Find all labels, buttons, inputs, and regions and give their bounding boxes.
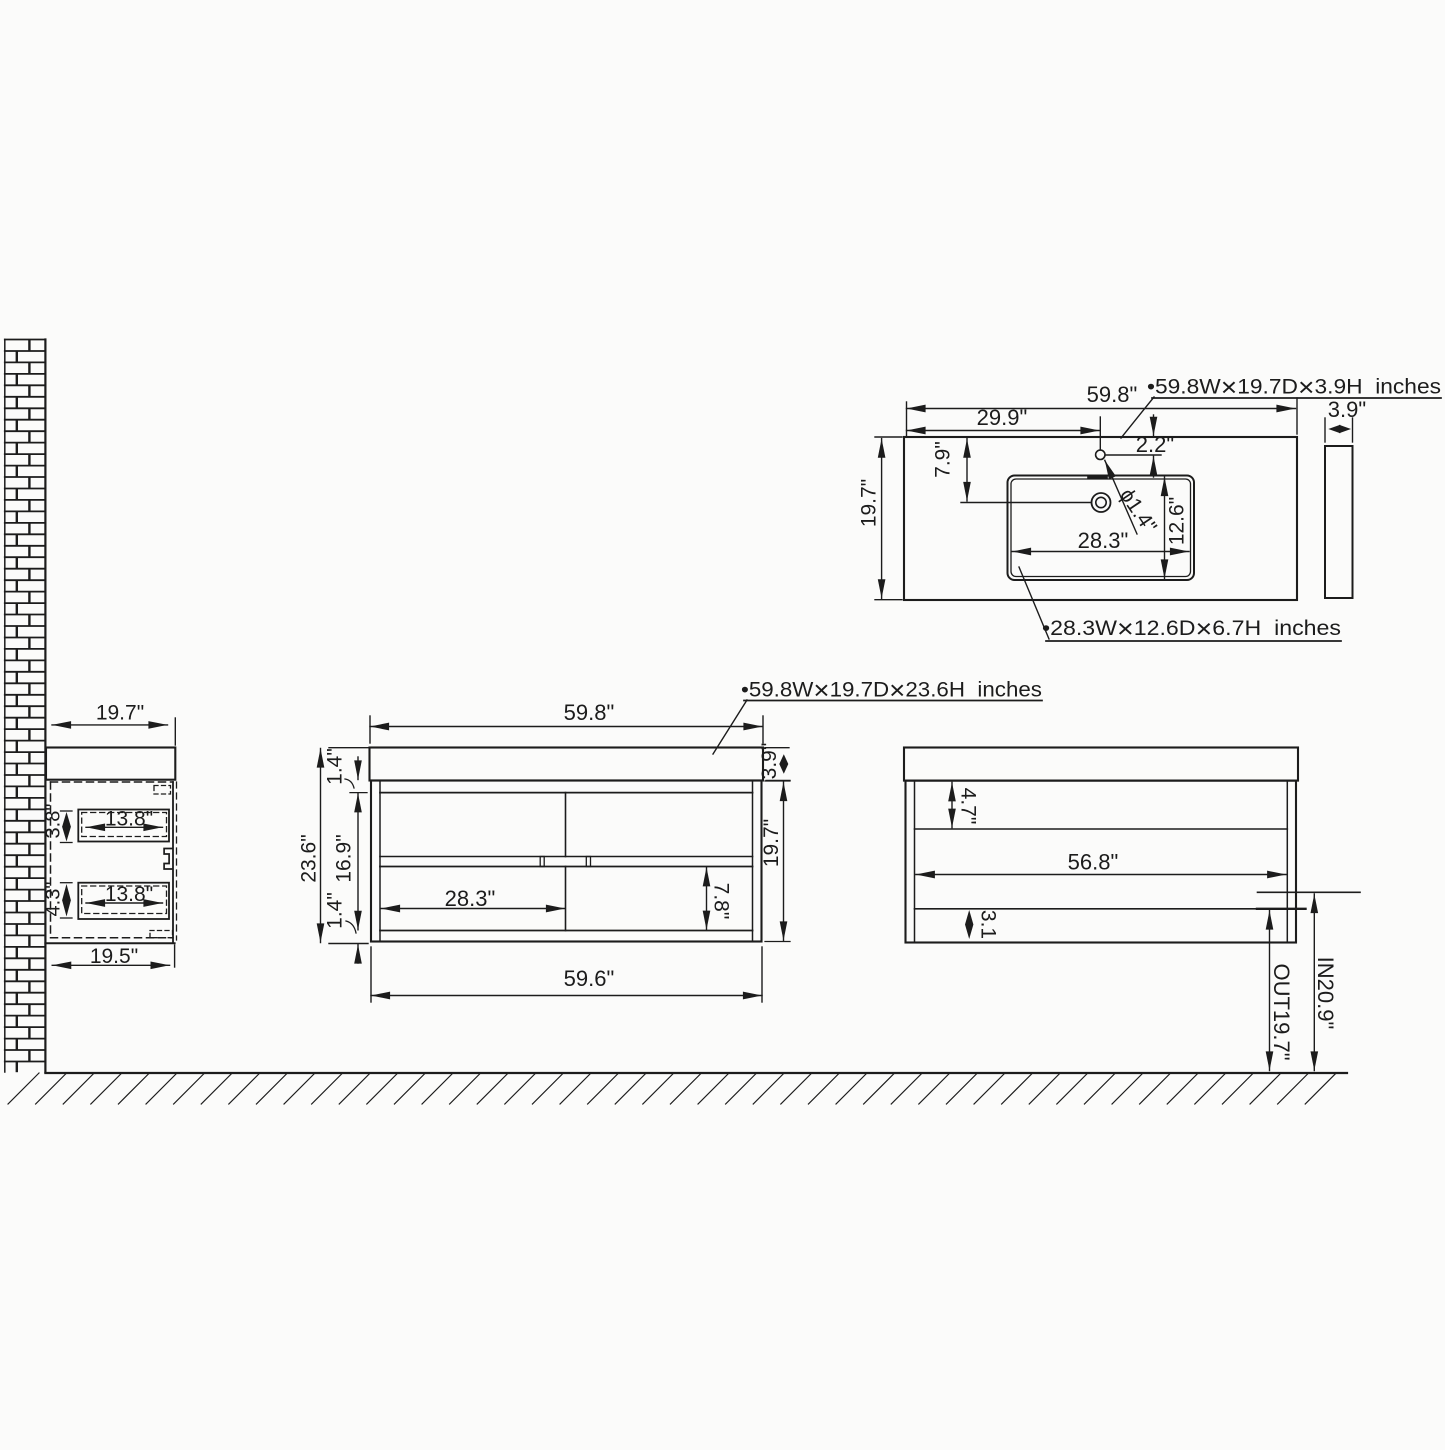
svg-text:59.6": 59.6" xyxy=(564,966,615,991)
svg-text:1.4": 1.4" xyxy=(324,748,347,785)
svg-text:23.6": 23.6" xyxy=(298,834,321,882)
svg-text:4.7": 4.7" xyxy=(957,788,980,825)
svg-text:1.4": 1.4" xyxy=(324,892,347,929)
svg-text:IN20.9": IN20.9" xyxy=(1313,957,1338,1030)
svg-text:59.8": 59.8" xyxy=(1087,382,1138,407)
svg-text:19.7": 19.7" xyxy=(858,479,881,527)
svg-text:•28.3W×12.6D×6.7H inches: •28.3W×12.6D×6.7H inches xyxy=(1042,614,1341,644)
svg-text:16.9": 16.9" xyxy=(333,834,356,882)
svg-text:3.1: 3.1 xyxy=(977,910,1000,939)
svg-text:2.2": 2.2" xyxy=(1136,432,1174,457)
svg-text:12.6": 12.6" xyxy=(1166,497,1189,545)
svg-text:19.7": 19.7" xyxy=(96,702,144,725)
svg-text:29.9": 29.9" xyxy=(977,405,1028,430)
svg-text:3.8": 3.8" xyxy=(43,804,65,839)
svg-text:4.3": 4.3" xyxy=(43,882,65,917)
svg-text:28.3": 28.3" xyxy=(445,886,496,911)
svg-text:56.8": 56.8" xyxy=(1068,850,1119,875)
svg-text:59.8": 59.8" xyxy=(564,700,615,725)
svg-text:7.9": 7.9" xyxy=(932,441,955,478)
svg-text:19.7": 19.7" xyxy=(760,819,783,867)
svg-text:3.9": 3.9" xyxy=(1328,397,1366,422)
svg-text:19.5": 19.5" xyxy=(90,945,138,968)
svg-text:OUT19.7": OUT19.7" xyxy=(1269,963,1294,1060)
svg-text:7.8": 7.8" xyxy=(710,883,733,920)
svg-text:28.3": 28.3" xyxy=(1078,528,1129,553)
